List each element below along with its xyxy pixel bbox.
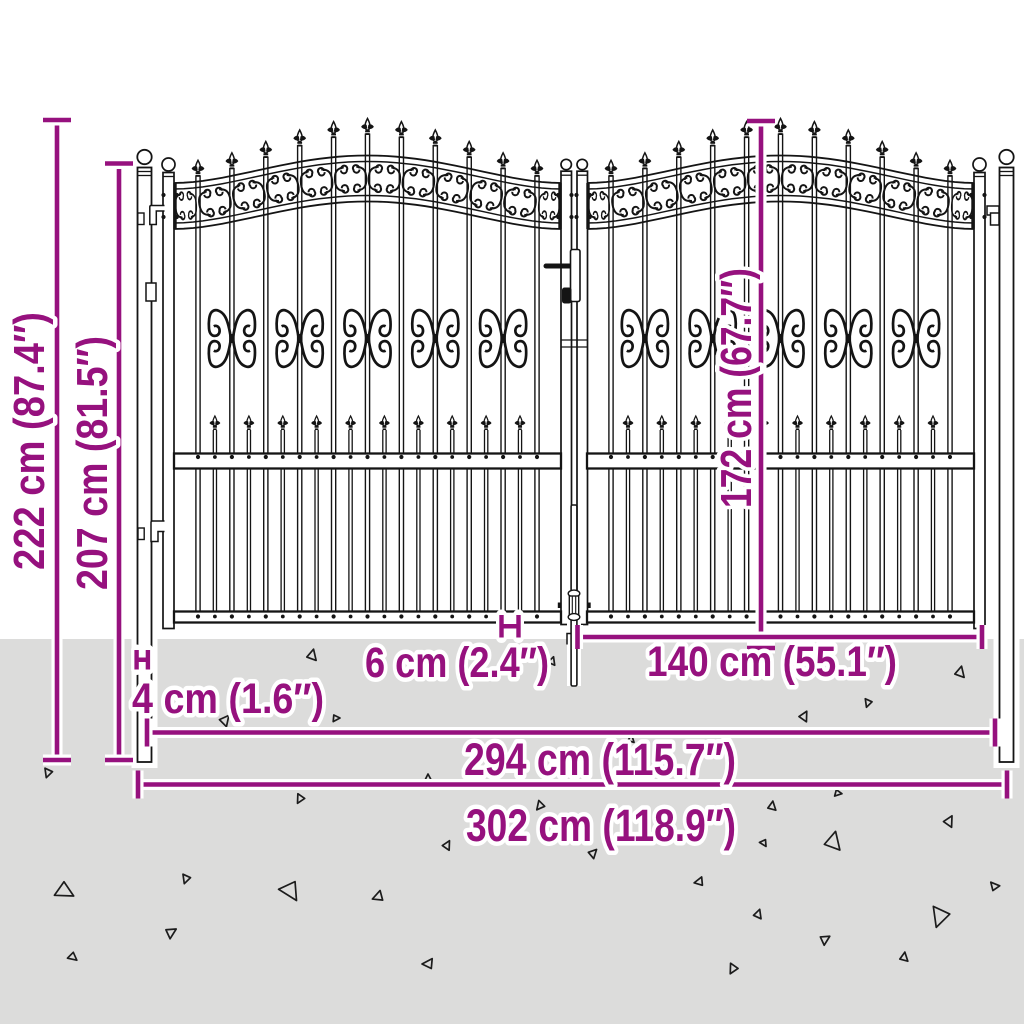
svg-text:294 cm (115.7″): 294 cm (115.7″) [464,734,736,785]
svg-text:172 cm (67.7″): 172 cm (67.7″) [712,268,761,508]
svg-text:140 cm (55.1″): 140 cm (55.1″) [647,638,897,686]
svg-text:302 cm (118.9″): 302 cm (118.9″) [466,800,736,851]
svg-text:6 cm (2.4″): 6 cm (2.4″) [365,639,549,687]
svg-text:4 cm (1.6″): 4 cm (1.6″) [132,675,324,723]
svg-text:222 cm (87.4″): 222 cm (87.4″) [5,312,54,570]
svg-text:207 cm (81.5″): 207 cm (81.5″) [68,336,117,590]
